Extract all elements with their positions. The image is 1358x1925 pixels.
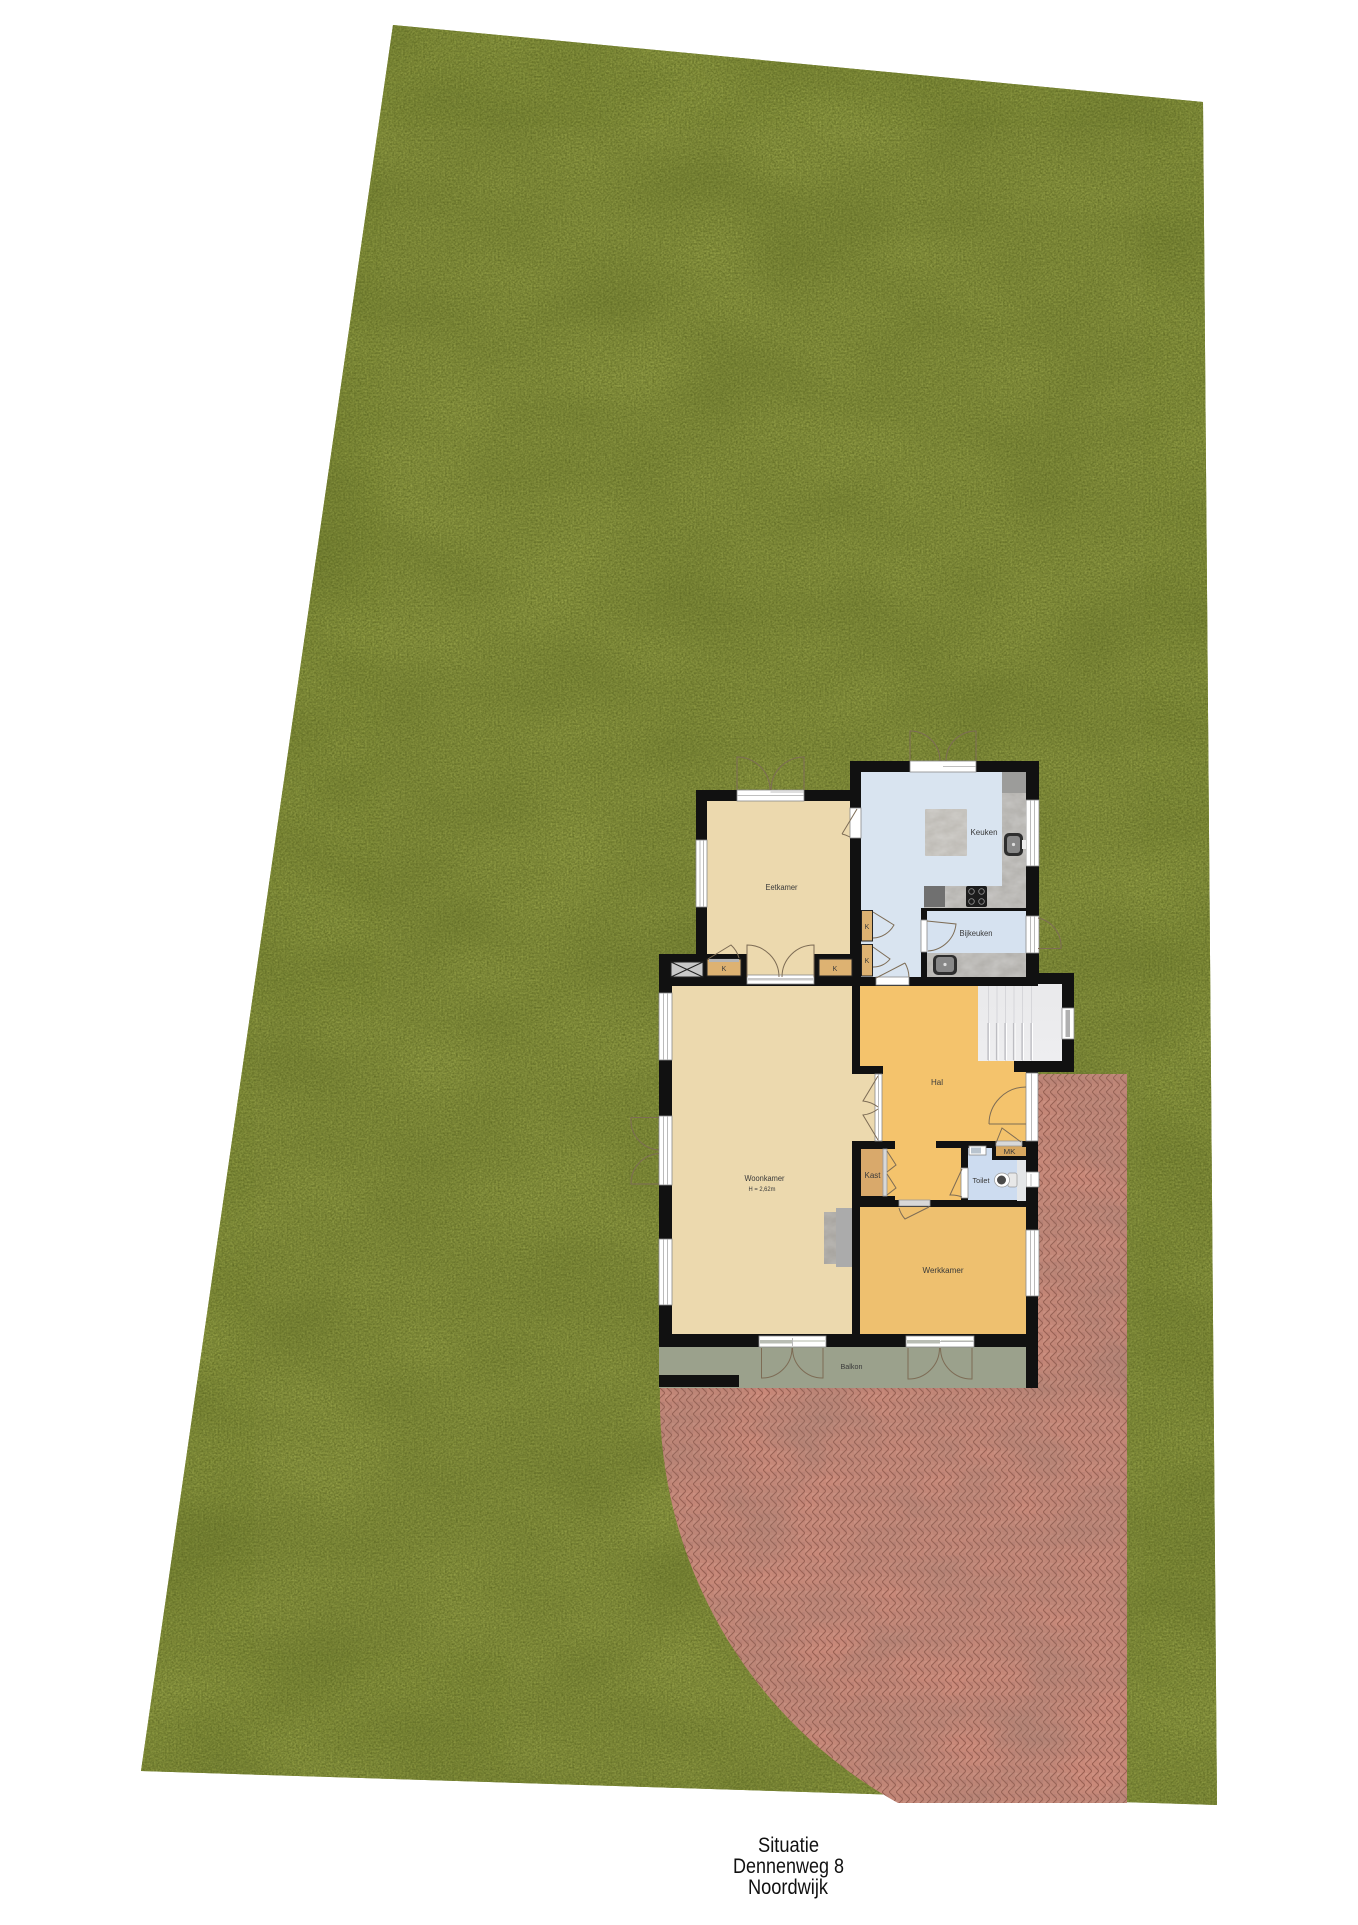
svg-text:K: K	[865, 924, 870, 931]
svg-text:Noordwijk: Noordwijk	[748, 1876, 828, 1899]
svg-text:H = 2,62m: H = 2,62m	[749, 1187, 776, 1193]
svg-text:Dennenweg 8: Dennenweg 8	[733, 1855, 844, 1878]
svg-text:Eetkamer: Eetkamer	[766, 883, 798, 892]
svg-text:K: K	[833, 966, 838, 973]
svg-text:K: K	[722, 966, 727, 973]
svg-text:Werkkamer: Werkkamer	[923, 1266, 964, 1275]
svg-text:Kast: Kast	[865, 1171, 882, 1180]
svg-text:Toilet: Toilet	[973, 1178, 990, 1185]
svg-text:Situatie: Situatie	[758, 1834, 819, 1857]
svg-text:Woonkamer: Woonkamer	[745, 1174, 785, 1183]
svg-text:Bijkeuken: Bijkeuken	[960, 929, 993, 938]
svg-text:Hal: Hal	[931, 1078, 943, 1087]
svg-text:MK: MK	[1004, 1149, 1016, 1156]
svg-text:K: K	[865, 958, 870, 965]
svg-text:Balkon: Balkon	[841, 1364, 863, 1371]
svg-text:Keuken: Keuken	[971, 828, 998, 837]
